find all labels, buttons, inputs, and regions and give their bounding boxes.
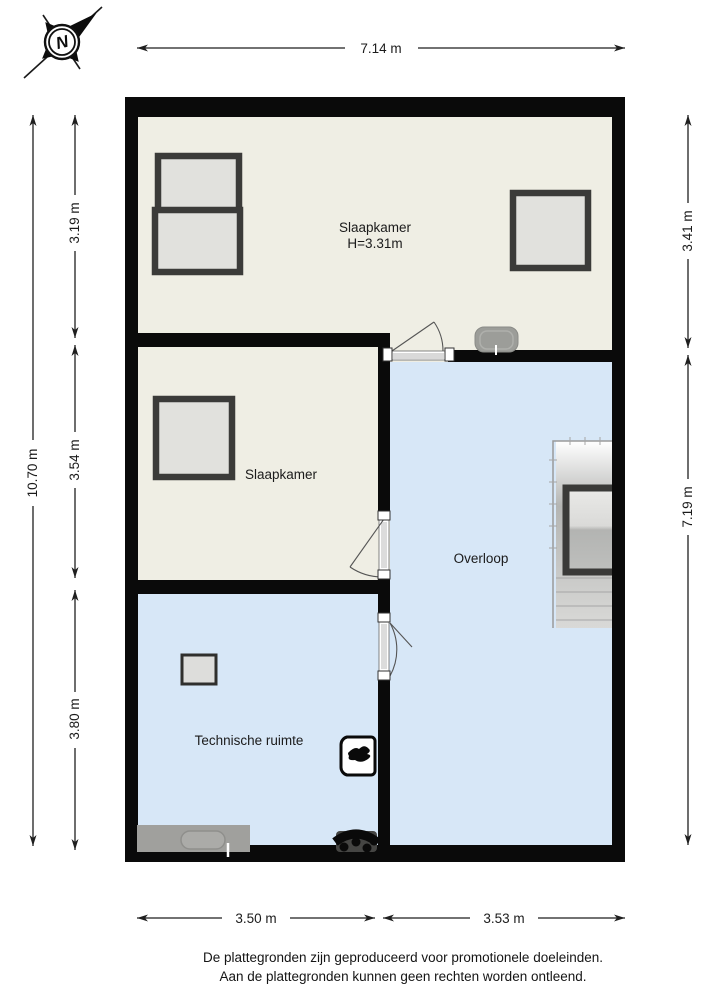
dim-bottom-right: 3.53 m xyxy=(483,911,524,926)
wall-slaapkamer1-bottom xyxy=(125,333,390,347)
wall-right xyxy=(612,97,625,862)
dim-bottom-left: 3.50 m xyxy=(235,911,276,926)
sink-icon xyxy=(475,327,518,355)
roof-window-icon xyxy=(158,156,239,212)
wall-divider-3 xyxy=(378,678,390,845)
floor-plan-drawing: Slaapkamer H=3.31m Slaapkamer Overloop T… xyxy=(0,0,721,1000)
footer-disclaimer: De plattegronden zijn geproduceerd voor … xyxy=(103,948,703,986)
room-label-technische: Technische ruimte xyxy=(195,733,304,748)
boiler-icon xyxy=(341,737,375,775)
door-post xyxy=(378,613,390,622)
wall-overloop-top xyxy=(448,350,612,362)
dim-top-width: 7.14 m xyxy=(360,41,401,56)
staircase xyxy=(549,437,620,628)
room-height-slaapkamer1: H=3.31m xyxy=(347,236,402,251)
door-post xyxy=(383,348,392,361)
floor-plan-page: Slaapkamer H=3.31m Slaapkamer Overloop T… xyxy=(0,0,721,1000)
roof-window-icon xyxy=(156,399,232,477)
door-post xyxy=(378,570,390,579)
room-label-slaapkamer1: Slaapkamer xyxy=(339,220,412,235)
door-post xyxy=(378,671,390,680)
roof-window-icon xyxy=(155,210,240,272)
roof-window-icon xyxy=(513,193,588,268)
wall-technische-top xyxy=(125,580,390,594)
dim-left-middle: 3.54 m xyxy=(67,439,82,480)
wall-divider-1 xyxy=(378,347,390,513)
door-post xyxy=(378,511,390,520)
dim-left-total: 10.70 m xyxy=(25,449,40,498)
wall-top xyxy=(125,97,625,117)
appliance-icon xyxy=(335,831,379,853)
roof-window-small-icon xyxy=(182,655,216,684)
footer-line2: Aan de plattegronden kunnen geen rechten… xyxy=(103,967,703,986)
wall-left xyxy=(125,97,138,862)
stair-roof-window xyxy=(566,488,620,572)
room-technische-floor xyxy=(138,594,378,845)
compass-north-icon: N xyxy=(24,0,113,79)
room-label-overloop: Overloop xyxy=(454,551,509,566)
dim-left-top: 3.19 m xyxy=(67,202,82,243)
dim-left-bottom: 3.80 m xyxy=(67,698,82,739)
door-post xyxy=(445,348,454,361)
dim-right-top: 3.41 m xyxy=(680,210,695,251)
dim-right-bottom: 7.19 m xyxy=(680,486,695,527)
room-label-slaapkamer2: Slaapkamer xyxy=(245,467,318,482)
footer-line1: De plattegronden zijn geproduceerd voor … xyxy=(103,948,703,967)
